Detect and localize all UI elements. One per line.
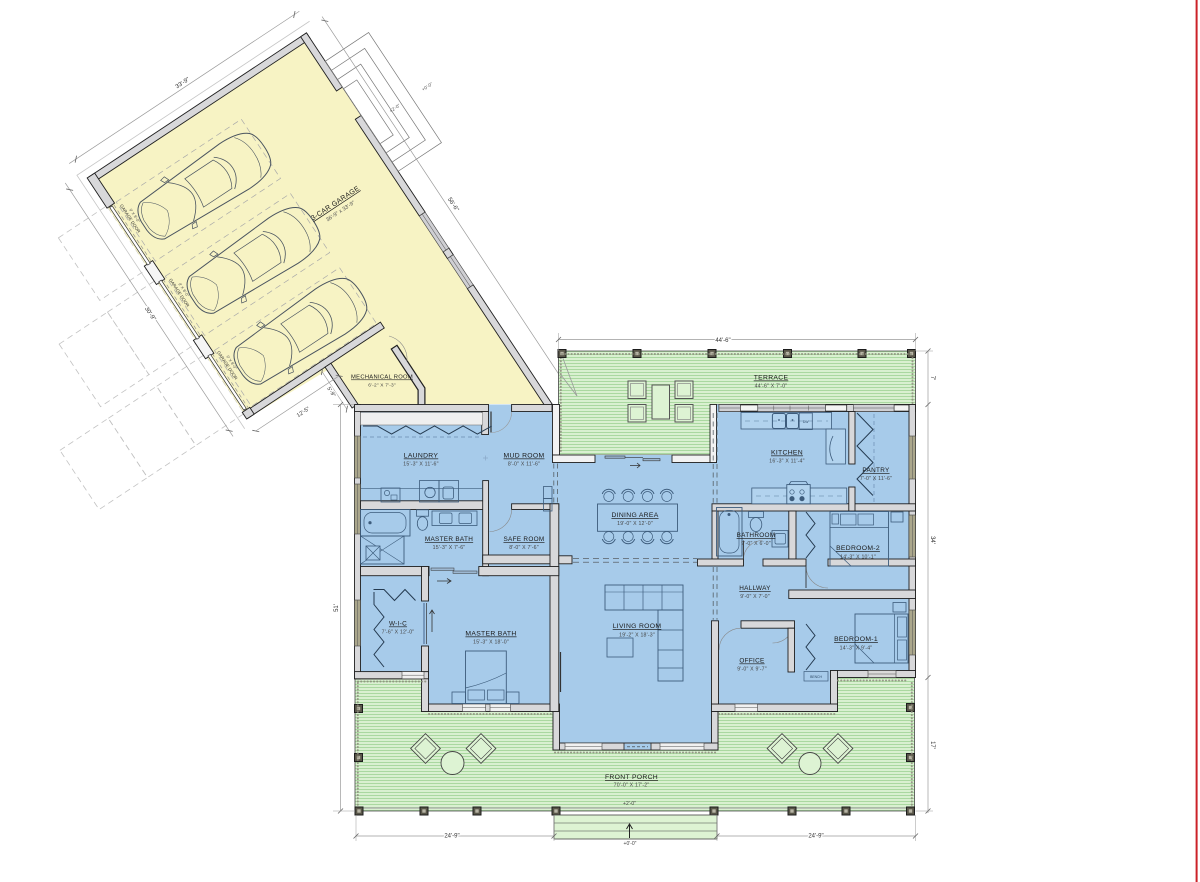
- svg-text:DW: DW: [803, 420, 809, 424]
- svg-text:6'-2" X 7'-3": 6'-2" X 7'-3": [368, 383, 396, 389]
- svg-text:70'-0" X 17'-2": 70'-0" X 17'-2": [614, 783, 650, 789]
- svg-text:51': 51': [334, 604, 340, 612]
- svg-text:14'-3" X 10'-1": 14'-3" X 10'-1": [840, 555, 876, 561]
- svg-text:BENCH: BENCH: [810, 675, 822, 679]
- svg-text:HALLWAY: HALLWAY: [739, 585, 771, 592]
- svg-text:17': 17': [929, 741, 935, 749]
- svg-text:24'-9": 24'-9": [808, 834, 823, 840]
- svg-text:9'-0" X 9'-7": 9'-0" X 9'-7": [737, 667, 767, 673]
- svg-text:44'-6" X 7'-0": 44'-6" X 7'-0": [755, 384, 788, 390]
- svg-text:24'-9": 24'-9": [444, 834, 459, 840]
- svg-text:7'-6" X 12'-0": 7'-6" X 12'-0": [382, 630, 415, 636]
- svg-text:8'-0" X 11'-6": 8'-0" X 11'-6": [508, 462, 540, 468]
- svg-text:7'-0" X 11'-6": 7'-0" X 11'-6": [860, 476, 892, 482]
- svg-text:15'-3" X 18'-0": 15'-3" X 18'-0": [473, 640, 509, 646]
- svg-text:+2'-0": +2'-0": [623, 801, 636, 807]
- svg-text:OFFICE: OFFICE: [739, 658, 764, 665]
- svg-text:MASTER BATH: MASTER BATH: [465, 631, 516, 638]
- svg-text:9'-0" X 6'-0": 9'-0" X 6'-0": [741, 541, 771, 547]
- svg-text:SAFE ROOM: SAFE ROOM: [503, 536, 544, 543]
- svg-text:FRONT PORCH: FRONT PORCH: [605, 774, 658, 781]
- svg-text:19'-2" X 18'-3": 19'-2" X 18'-3": [619, 633, 655, 639]
- svg-text:KITCHEN: KITCHEN: [771, 450, 803, 457]
- svg-text:DINING AREA: DINING AREA: [611, 512, 658, 519]
- svg-text:9'-0" X 7'-0": 9'-0" X 7'-0": [740, 594, 770, 600]
- svg-text:BEDROOM-2: BEDROOM-2: [836, 545, 880, 552]
- svg-text:15'-3" X 11'-6": 15'-3" X 11'-6": [403, 462, 438, 468]
- svg-text:W-I-C: W-I-C: [389, 621, 407, 628]
- svg-text:34': 34': [929, 536, 935, 544]
- svg-text:16'-3" X 11'-4": 16'-3" X 11'-4": [769, 459, 804, 465]
- svg-text:LAUNDRY: LAUNDRY: [404, 453, 439, 460]
- svg-text:8'-0" X 7'-6": 8'-0" X 7'-6": [509, 545, 539, 551]
- svg-text:PANTRY: PANTRY: [862, 467, 890, 474]
- svg-text:15'-3" X 7'-6": 15'-3" X 7'-6": [433, 545, 466, 551]
- svg-text:BATHROOM: BATHROOM: [737, 532, 776, 539]
- svg-text:44'-6": 44'-6": [715, 338, 730, 344]
- svg-text:TERRACE: TERRACE: [754, 375, 789, 382]
- svg-text:14'-3" X 9'-4": 14'-3" X 9'-4": [840, 646, 873, 652]
- svg-text:MUD ROOM: MUD ROOM: [504, 453, 545, 460]
- svg-text:+0'-0": +0'-0": [624, 841, 637, 847]
- svg-text:BEDROOM-1: BEDROOM-1: [834, 636, 878, 643]
- svg-text:7': 7': [929, 376, 935, 380]
- svg-text:LIVING ROOM: LIVING ROOM: [613, 623, 662, 630]
- svg-text:MECHANICAL ROOM: MECHANICAL ROOM: [351, 375, 413, 381]
- svg-text:MASTER BATH: MASTER BATH: [425, 536, 473, 543]
- svg-text:19'-0" X 12'-0": 19'-0" X 12'-0": [617, 521, 653, 527]
